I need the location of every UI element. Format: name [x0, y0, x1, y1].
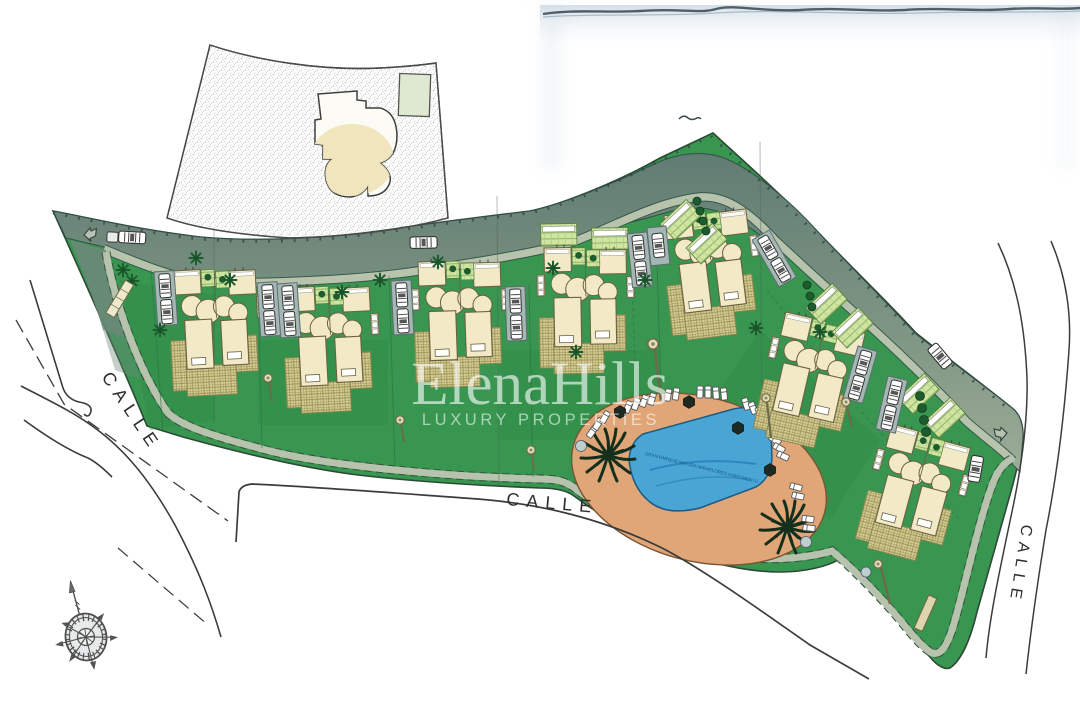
svg-text:ElenaHills: ElenaHills — [411, 351, 669, 418]
svg-text:LUXURY PROPERTIES: LUXURY PROPERTIES — [422, 411, 660, 429]
